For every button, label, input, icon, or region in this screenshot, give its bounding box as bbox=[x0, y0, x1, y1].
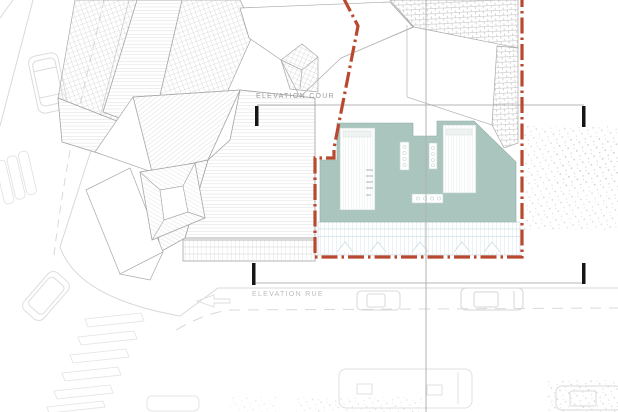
elevation-rue-marker bbox=[252, 263, 586, 285]
crosswalk-stripes bbox=[47, 313, 144, 412]
car-street-1 bbox=[357, 291, 400, 310]
deck-terrace-band bbox=[318, 222, 520, 255]
tick-rue-left bbox=[252, 263, 256, 285]
car-partial-bottom bbox=[147, 396, 199, 411]
parking-stalls bbox=[0, 150, 38, 204]
tick-cour-left bbox=[255, 106, 259, 126]
balcony-strip-2 bbox=[429, 143, 437, 169]
roof-eave-band bbox=[183, 240, 315, 261]
balcony-strip-3 bbox=[412, 194, 443, 203]
road-direction-arrow bbox=[197, 295, 230, 307]
car-bottom-left bbox=[20, 269, 72, 324]
elevation-rue-label: ELEVATION RUE bbox=[252, 291, 324, 298]
building-footprint bbox=[320, 121, 516, 222]
elevation-cour-label: ELEVATION COUR bbox=[256, 93, 335, 100]
tick-cour-right bbox=[582, 106, 586, 127]
roof-hipped-top-center bbox=[240, 2, 413, 97]
stair-core-east bbox=[443, 125, 476, 193]
car-street-2 bbox=[461, 288, 523, 310]
roof-fan-center-left bbox=[86, 90, 315, 280]
tick-rue-right bbox=[582, 263, 586, 284]
stair-core-west bbox=[340, 128, 375, 210]
balcony-strip-1 bbox=[400, 142, 409, 170]
site-plan-svg bbox=[0, 0, 618, 412]
site-plan-canvas: ELEVATION COUR ELEVATION RUE bbox=[0, 0, 618, 412]
